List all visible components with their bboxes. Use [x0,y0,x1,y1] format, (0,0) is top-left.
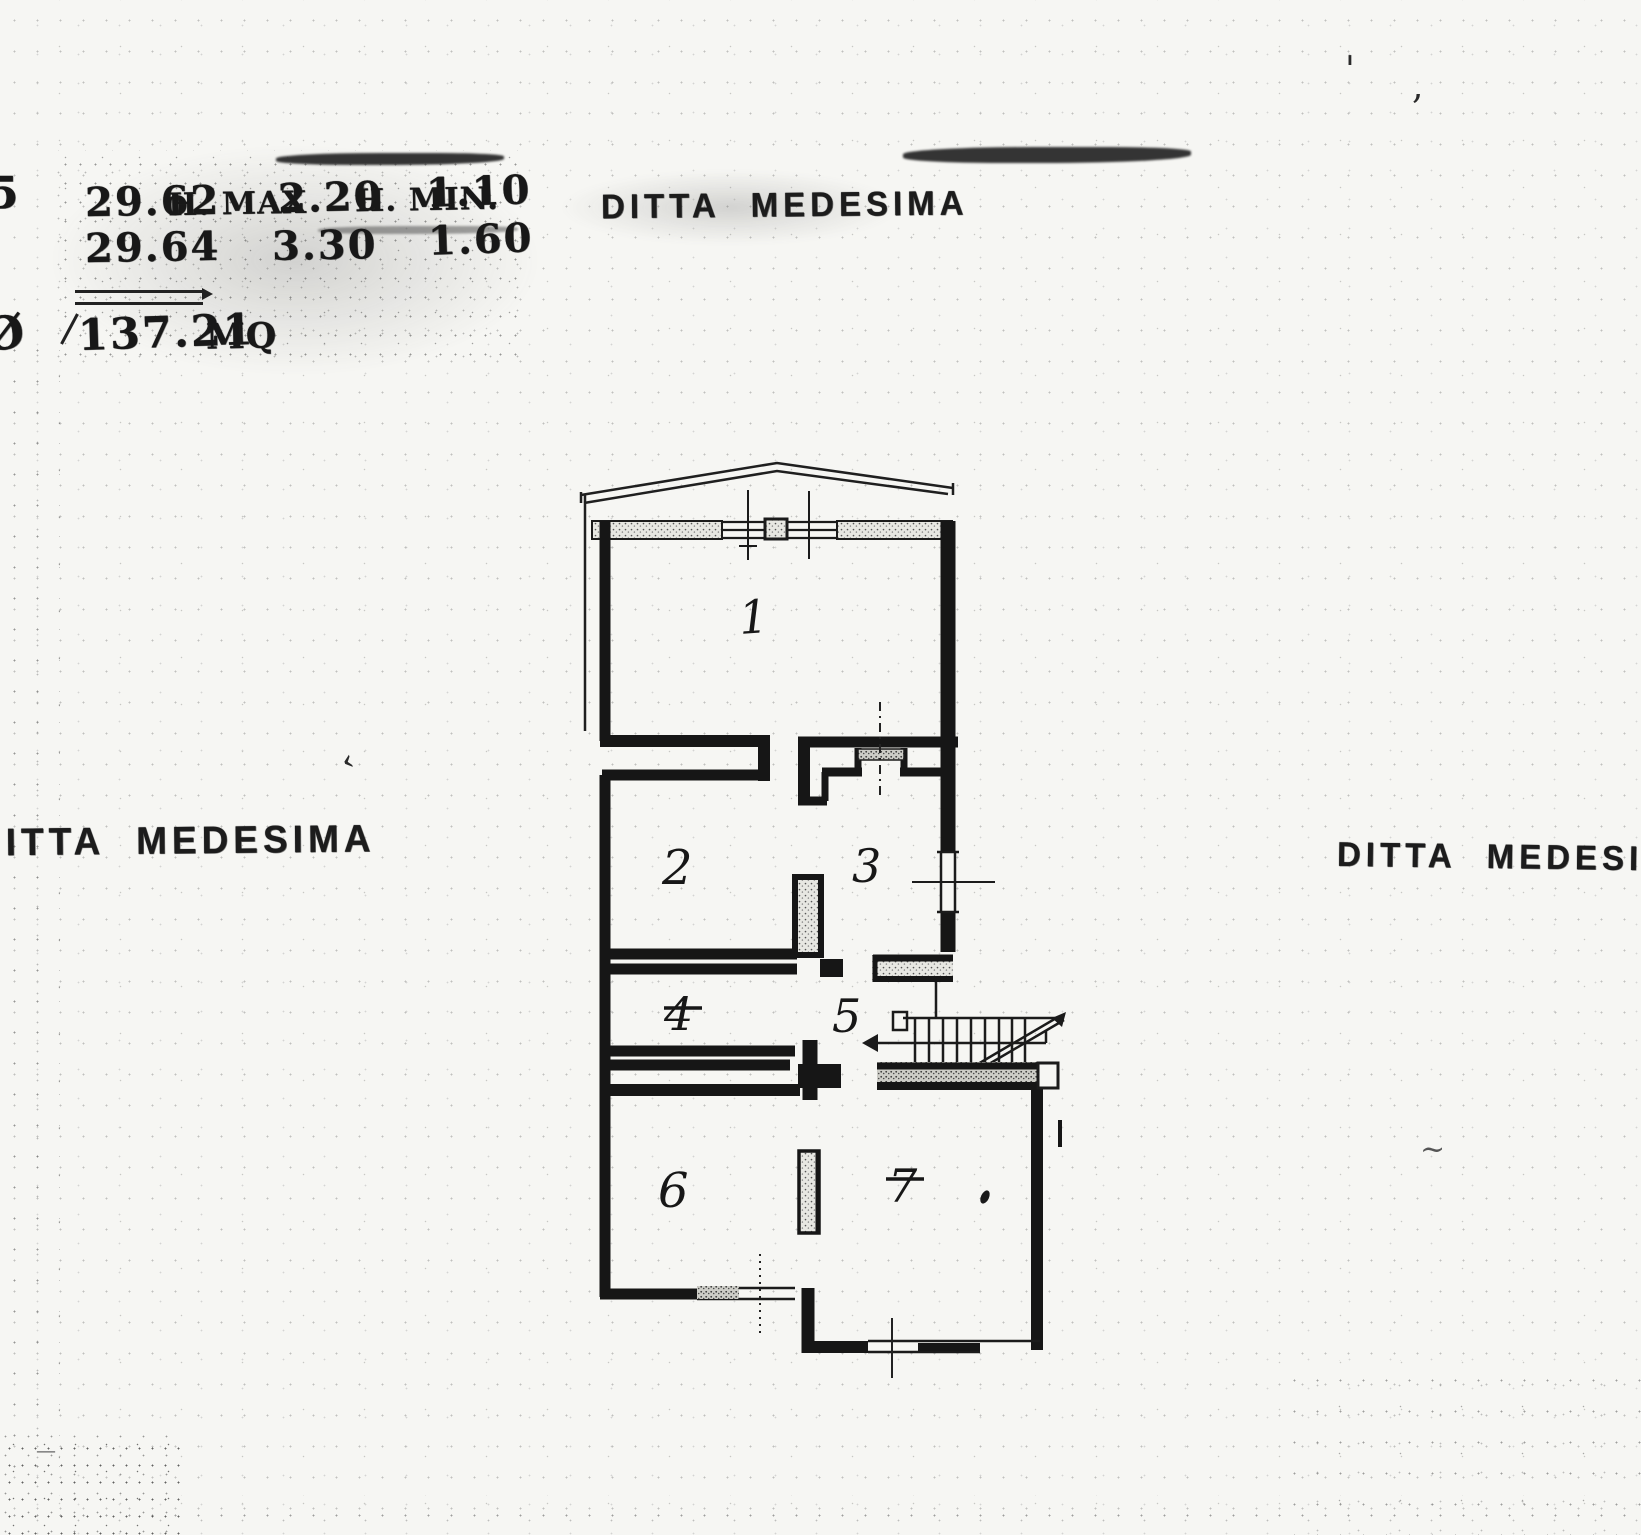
room-label-3: 3 [852,839,881,893]
stray-mark-apostrophe: ' [1345,50,1355,91]
bottom-right-speckle [1280,1360,1641,1535]
edge-fragment-top: 5 [0,168,21,219]
room6-bottom-window [697,1254,795,1334]
scanned-floor-plan-page: 29.62 H. MAX 2.20 H. MIN. 1.10 29.64 3.3… [0,0,1641,1535]
ditta-medesima-top: DITTA MEDESIMA [601,183,969,226]
left-edge-speckle [0,330,60,1490]
total-double-rule [75,290,203,305]
area-row2-value: 29.64 [85,223,221,272]
pier-room2-room3 [795,877,843,968]
entry-niche [798,737,958,801]
room-label-2: 2 [661,840,693,896]
toner-smudge-2 [903,147,1191,163]
stray-mark-squiggle: ~ [1420,1132,1445,1167]
room3-right-window [912,852,995,912]
total-area-unit: MQ [206,315,278,357]
stray-ink-blob [978,1189,991,1205]
hmin-row1-value: 1.10 [425,166,532,217]
hmin-row2-value: 1.60 [427,214,534,265]
room-numbers: 1 2 3 4 5 6 7 [658,589,924,1219]
toner-smudge-1 [276,153,504,165]
ditta-medesima-right: DITTA MEDESIMA [1337,835,1641,880]
bottom-strip-speckle [0,1495,1641,1535]
ditta-medesima-left: DITTA MEDESIMA [0,817,376,865]
room-label-1: 1 [737,589,770,645]
roof-gable-outline [581,463,953,731]
stray-mark-comma: , [1412,66,1423,107]
bottom-left-speckle [0,1435,180,1535]
total-lead-in-stroke [60,313,79,344]
hmax-row2-value: 3.30 [272,221,378,270]
cross-pier-room6-room7 [798,1040,841,1100]
total-rule-arrowhead [202,288,213,300]
room-label-6: 6 [658,1163,689,1219]
stray-mark-tick: ‹ [337,743,358,778]
corner-pilaster [1038,1063,1058,1088]
room-label-7: 7 [888,1159,918,1213]
room1-top-wall [592,490,952,560]
edge-fragment-bottom: Ø [0,303,30,362]
room-label-5: 5 [832,989,861,1043]
freestanding-pier [799,1151,819,1233]
floor-plan-drawing: 1 2 3 4 5 6 7 [540,440,1080,1400]
room-label-4: 4 [663,987,693,1041]
stray-mark-dash: — [36,1438,56,1462]
